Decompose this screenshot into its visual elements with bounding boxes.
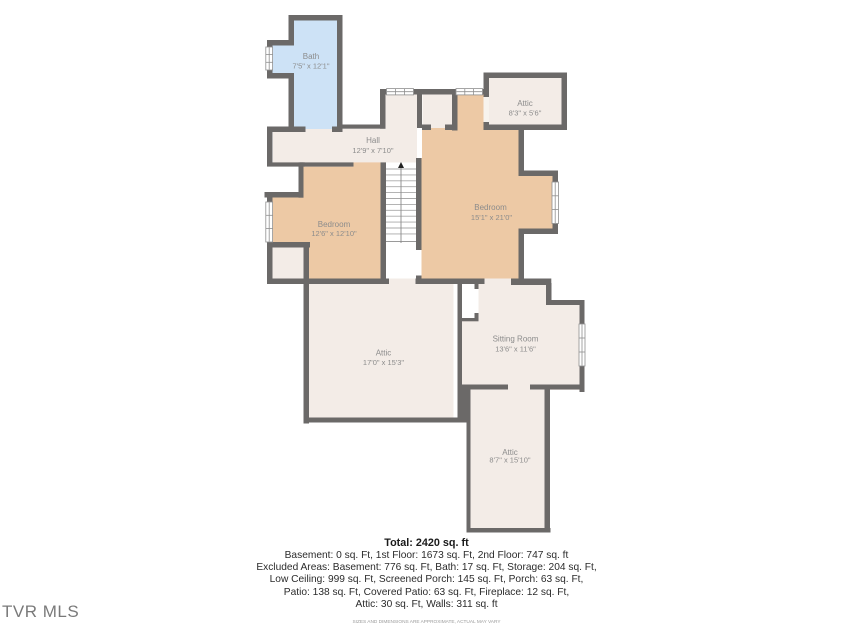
- svg-text:13'6" x 11'6": 13'6" x 11'6": [495, 345, 536, 354]
- svg-text:Hall: Hall: [366, 136, 380, 145]
- svg-text:12'6" x 12'10": 12'6" x 12'10": [311, 229, 357, 238]
- svg-text:Bedroom: Bedroom: [318, 220, 351, 229]
- svg-text:17'0" x 15'3": 17'0" x 15'3": [363, 358, 404, 367]
- svg-text:Sitting Room: Sitting Room: [493, 335, 539, 344]
- svg-text:8'3" x 5'6": 8'3" x 5'6": [509, 109, 542, 118]
- svg-text:15'1" x 21'0": 15'1" x 21'0": [471, 213, 512, 222]
- svg-text:Attic: Attic: [517, 99, 533, 108]
- svg-text:Bath: Bath: [303, 52, 319, 61]
- svg-text:Attic: Attic: [376, 349, 392, 358]
- svg-text:7'5" x 12'1": 7'5" x 12'1": [293, 62, 330, 71]
- svg-text:8'7" x 15'10": 8'7" x 15'10": [489, 456, 530, 465]
- svg-text:Bedroom: Bedroom: [474, 203, 507, 212]
- svg-text:12'9" x 7'10": 12'9" x 7'10": [352, 146, 393, 155]
